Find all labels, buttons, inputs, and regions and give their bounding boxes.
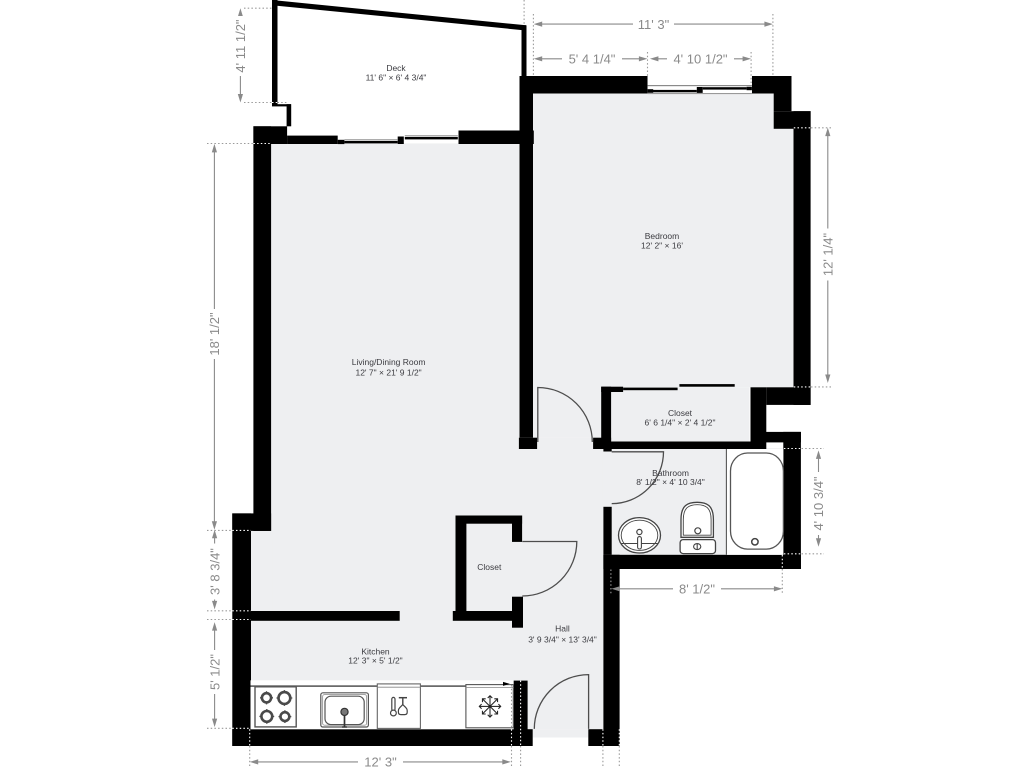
svg-text:12' 7" × 21' 9 1/2": 12' 7" × 21' 9 1/2" — [355, 368, 421, 378]
svg-text:4' 10 1/2": 4' 10 1/2" — [673, 52, 727, 67]
svg-text:Deck: Deck — [386, 63, 406, 73]
svg-text:6' 6 1/4" × 2' 4 1/2": 6' 6 1/4" × 2' 4 1/2" — [645, 417, 716, 427]
svg-text:12' 3" × 5' 1/2": 12' 3" × 5' 1/2" — [348, 656, 402, 666]
svg-text:Hall: Hall — [555, 624, 570, 634]
svg-text:3' 9 3/4" × 13' 3/4": 3' 9 3/4" × 13' 3/4" — [528, 635, 597, 645]
svg-text:5' 1/2": 5' 1/2" — [207, 654, 222, 690]
svg-text:11' 3": 11' 3" — [638, 17, 670, 32]
svg-text:8' 1/2" × 4' 10 3/4": 8' 1/2" × 4' 10 3/4" — [636, 477, 705, 487]
svg-text:8' 1/2": 8' 1/2" — [679, 582, 715, 597]
svg-text:4' 11 1/2": 4' 11 1/2" — [233, 19, 248, 73]
svg-text:3' 8 3/4": 3' 8 3/4" — [207, 548, 222, 595]
svg-text:12' 2" × 16': 12' 2" × 16' — [641, 240, 683, 250]
svg-text:11' 6" × 6' 4 3/4": 11' 6" × 6' 4 3/4" — [366, 72, 427, 82]
svg-text:Closet: Closet — [668, 408, 693, 418]
svg-text:12' 3": 12' 3" — [364, 755, 397, 768]
svg-text:Bedroom: Bedroom — [645, 231, 680, 241]
svg-text:12' 1/4": 12' 1/4" — [821, 232, 836, 276]
svg-text:4' 10 3/4": 4' 10 3/4" — [811, 476, 826, 530]
svg-text:18' 1/2": 18' 1/2" — [207, 312, 222, 356]
svg-text:5' 4 1/4": 5' 4 1/4" — [569, 52, 616, 67]
svg-text:Living/Dining Room: Living/Dining Room — [352, 357, 426, 367]
svg-text:Closet: Closet — [477, 562, 502, 572]
